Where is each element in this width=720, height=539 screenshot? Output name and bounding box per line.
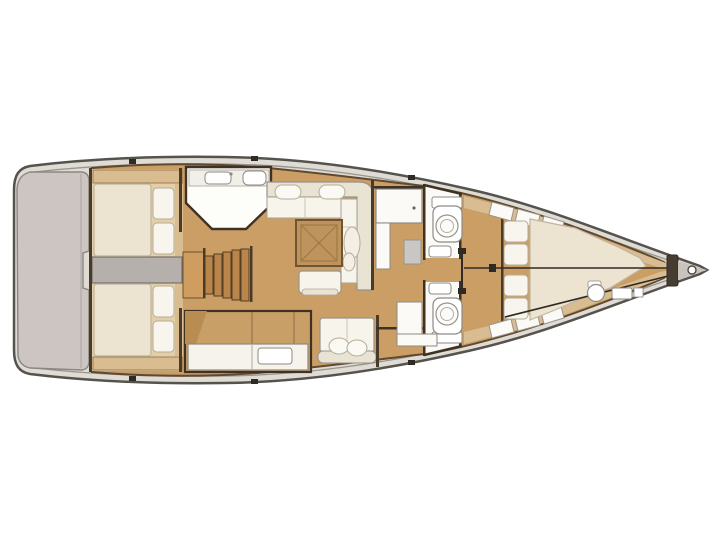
bulkhead-transom (89, 168, 92, 372)
chain-locker (667, 255, 678, 286)
centerline-fitting (489, 264, 496, 272)
galley-sink (258, 348, 292, 364)
shower-tray (404, 240, 421, 264)
wardrobe-handle (412, 206, 415, 209)
companionway-step-5 (241, 249, 249, 301)
bow-fitting (688, 266, 696, 274)
bulkhead-aft-cabin-stbd (179, 308, 182, 372)
companionway-wall-right (250, 246, 253, 302)
companionway-wall-left (203, 248, 206, 298)
aft-berth-stbd-pillow-2 (153, 321, 174, 352)
headboard-shelf-port (93, 170, 182, 183)
aft-berth-port-mattress (94, 184, 151, 256)
toilet-port-bowl (436, 215, 458, 237)
toilet-stbd-bowl (436, 303, 458, 325)
fwd-head-port-sink (429, 246, 451, 257)
rail-cleat-bottom-2 (251, 379, 258, 384)
floorplan-canvas (0, 0, 720, 539)
salon-bench-back (302, 289, 338, 295)
settee-wall (376, 315, 379, 367)
fwd-head-port-wall-left (423, 184, 426, 260)
aft-head-toilet (243, 171, 266, 185)
forepeak-locker (634, 288, 643, 297)
transom-platform (17, 172, 89, 370)
aft-berth-port-pillow-2 (153, 223, 174, 254)
salon-sofa-throw-2 (343, 253, 355, 271)
engine-compartment (92, 257, 182, 283)
vberth-pillow-3 (504, 275, 528, 296)
aft-head-faucet (229, 172, 232, 175)
bulkhead-aft-cabin-port (179, 168, 182, 232)
companionway-step-3 (223, 252, 231, 298)
aft-berth-stbd-mattress (94, 284, 151, 356)
rail-cleat-bottom-3 (408, 360, 415, 365)
wardrobe-side (376, 223, 390, 269)
aft-head-sink (205, 172, 231, 184)
companionway-step-2 (214, 254, 222, 296)
vberth-pillow-2 (504, 244, 528, 265)
shower-stbd-panel-2 (397, 334, 437, 346)
companionway-step-4 (232, 250, 240, 300)
wardrobe-top (376, 189, 422, 223)
fwd-head-stbd-sink (429, 283, 451, 294)
companionway-step-1 (205, 256, 213, 294)
yacht-deck-plan (0, 0, 720, 539)
settee-pillow-2 (347, 340, 367, 356)
rail-cleat-top-2 (251, 156, 258, 161)
salon-sofa-pillow-2 (319, 185, 345, 199)
mast-foot-top (458, 248, 466, 254)
page-background (0, 0, 720, 539)
mast-foot-bottom (458, 288, 466, 294)
forepeak-sink (612, 288, 632, 299)
aft-berth-stbd-pillow-1 (153, 286, 174, 317)
companionway-landing (183, 252, 205, 298)
salon-fwd-wall (371, 180, 374, 290)
settee-back (318, 351, 376, 363)
forepeak-toilet (588, 285, 605, 302)
vberth-head-wall (501, 216, 504, 324)
corridor-wall-top (374, 186, 424, 189)
salon-sofa-pillow-1 (275, 185, 301, 199)
aft-berth-port-pillow-1 (153, 188, 174, 219)
headboard-shelf-stbd (93, 357, 182, 370)
rail-cleat-top-1 (129, 159, 136, 164)
rail-cleat-bottom-1 (129, 376, 136, 381)
rail-cleat-top-3 (408, 175, 415, 180)
vberth-pillow-1 (504, 221, 528, 242)
settee-pillow-1 (329, 338, 349, 354)
